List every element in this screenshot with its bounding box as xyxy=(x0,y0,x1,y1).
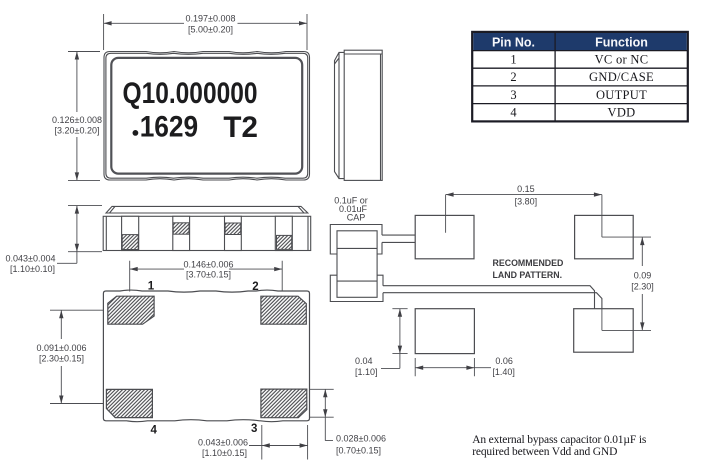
svg-text:GND/CASE: GND/CASE xyxy=(589,70,654,84)
svg-text:Pin No.: Pin No. xyxy=(492,35,535,49)
svg-text:3: 3 xyxy=(510,88,516,102)
svg-text:Function: Function xyxy=(595,35,648,49)
svg-text:[1.10±0.15]: [1.10±0.15] xyxy=(202,448,247,458)
svg-text:1: 1 xyxy=(510,53,516,67)
svg-text:[1.40]: [1.40] xyxy=(492,367,515,377)
svg-text:0.126±0.008: 0.126±0.008 xyxy=(52,115,102,125)
svg-text:[1.10±0.10]: [1.10±0.10] xyxy=(10,264,55,274)
svg-text:1629: 1629 xyxy=(140,111,199,144)
svg-text:RECOMMENDED: RECOMMENDED xyxy=(493,258,564,268)
svg-text:required between Vdd and GND: required between Vdd and GND xyxy=(472,446,617,458)
svg-text:[3.70±0.15]: [3.70±0.15] xyxy=(186,269,231,279)
svg-text:0.028±0.006: 0.028±0.006 xyxy=(336,434,386,444)
svg-text:[5.00±0.20]: [5.00±0.20] xyxy=(188,25,233,35)
svg-text:An external bypass capacitor 0: An external bypass capacitor 0.01µF is xyxy=(472,434,647,446)
svg-text:T2: T2 xyxy=(223,111,258,144)
svg-text:LAND PATTERN.: LAND PATTERN. xyxy=(493,270,563,280)
svg-text:VDD: VDD xyxy=(608,106,636,120)
svg-text:0.15: 0.15 xyxy=(517,184,535,194)
svg-text:4: 4 xyxy=(510,106,517,120)
svg-text:0.06: 0.06 xyxy=(495,356,513,366)
svg-text:0.197±0.008: 0.197±0.008 xyxy=(186,13,236,23)
svg-text:0.091±0.006: 0.091±0.006 xyxy=(37,343,87,353)
svg-text:0.09: 0.09 xyxy=(634,270,652,280)
svg-text:4: 4 xyxy=(150,425,157,437)
svg-text:[2.30]: [2.30] xyxy=(631,281,654,291)
svg-text:0.146±0.006: 0.146±0.006 xyxy=(184,260,234,270)
svg-text:2: 2 xyxy=(510,70,516,84)
svg-text:0.043±0.006: 0.043±0.006 xyxy=(198,438,248,448)
svg-text:VC or NC: VC or NC xyxy=(595,53,649,67)
svg-text:[1.10]: [1.10] xyxy=(355,367,378,377)
svg-text:[3.20±0.20]: [3.20±0.20] xyxy=(55,126,100,136)
svg-text:OUTPUT: OUTPUT xyxy=(596,88,647,102)
svg-text:[0.70±0.15]: [0.70±0.15] xyxy=(336,446,381,456)
svg-text:[3.80]: [3.80] xyxy=(515,197,538,207)
svg-text:0.043±0.004: 0.043±0.004 xyxy=(6,254,56,264)
svg-text:Q10.000000: Q10.000000 xyxy=(123,77,258,110)
svg-text:[2.30±0.15]: [2.30±0.15] xyxy=(39,354,84,364)
svg-text:0.04: 0.04 xyxy=(355,356,373,366)
svg-text:3: 3 xyxy=(251,423,257,435)
svg-text:CAP: CAP xyxy=(347,213,366,223)
